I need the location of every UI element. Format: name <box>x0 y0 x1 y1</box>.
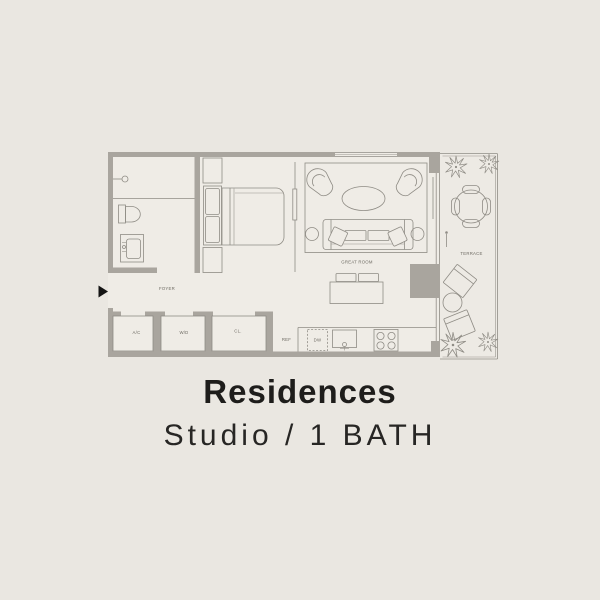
window <box>335 152 397 157</box>
closet-cl-label: CL. <box>234 329 241 334</box>
caption: Residences Studio / 1 BATH <box>0 374 600 452</box>
closet-ac-label: A/C <box>133 330 141 335</box>
page: GREAT ROOM FOYER A/C W/D CL. <box>0 0 600 600</box>
dishwasher-label: DW <box>314 338 322 343</box>
terrace-label: TERRACE <box>460 251 482 256</box>
great-room-label: GREAT ROOM <box>341 260 373 265</box>
unit-type-subtitle: Studio / 1 BATH <box>0 419 600 452</box>
entry-arrow-icon <box>99 286 109 298</box>
floor-plan: GREAT ROOM FOYER A/C W/D CL. <box>0 0 600 600</box>
terrace-floor <box>440 153 498 360</box>
residences-title: Residences <box>0 374 600 410</box>
closet-wd-label: W/D <box>179 330 188 335</box>
foyer-label: FOYER <box>159 286 175 291</box>
refrigerator-label: REF <box>282 337 291 342</box>
